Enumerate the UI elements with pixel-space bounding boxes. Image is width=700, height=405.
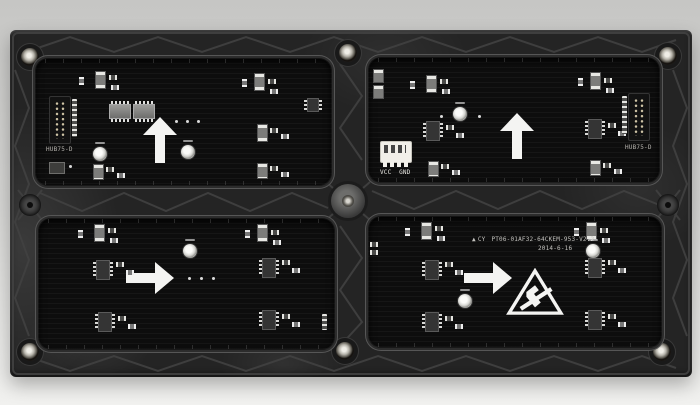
- via-dot: [69, 165, 72, 168]
- smd-capacitor: [93, 147, 107, 161]
- smd-ic: [425, 312, 439, 332]
- side-boss-left: [19, 194, 41, 216]
- component-cluster: [426, 121, 472, 143]
- component-cluster: [98, 312, 144, 334]
- component-cluster: [428, 161, 474, 181]
- smd-ic: [588, 119, 602, 139]
- smd-resistor: [292, 322, 300, 327]
- smd-resistor: [410, 81, 415, 89]
- smd-capacitor: [453, 107, 467, 121]
- smd-capacitor: [181, 145, 195, 159]
- smd-resistor: [281, 172, 289, 177]
- via-dot: [440, 115, 443, 118]
- smd-resistor: [117, 173, 125, 178]
- hub75-connector: [49, 96, 71, 144]
- solder-pads: [106, 167, 114, 172]
- solder-pads: [440, 79, 448, 84]
- triangle-logo-icon: ▲: [472, 237, 476, 243]
- smd-resistor: [602, 238, 610, 243]
- silkscreen-mark: [455, 102, 465, 104]
- smd-ic: [307, 98, 319, 112]
- component-cluster: [78, 224, 130, 250]
- solder-pads: [435, 226, 443, 231]
- solder-pads: [116, 262, 124, 267]
- esd-warning-icon: [506, 268, 564, 316]
- component-cluster: [257, 163, 303, 183]
- smd-resistor: [273, 240, 281, 245]
- smd-resistor: [245, 230, 250, 238]
- solder-pads: [268, 79, 276, 84]
- smd-ic: [96, 260, 110, 280]
- smd-resistor: [455, 324, 463, 329]
- smd-resistor: [79, 77, 84, 85]
- solder-pads: [600, 228, 608, 233]
- smd-capacitor: [586, 244, 600, 258]
- pcb-bay-bottom-left: [38, 218, 335, 350]
- smd-ic: [590, 72, 601, 90]
- solder-pads: [282, 260, 290, 265]
- smd-resistor: [242, 79, 247, 87]
- smd-resistor: [578, 78, 583, 86]
- arrow-up-icon: [500, 113, 534, 159]
- model-number: PT06-01AF32-64CKEM-953-V2.2: [491, 237, 594, 243]
- solder-pads: [604, 78, 612, 83]
- smd-ic: [588, 310, 602, 330]
- smd-ic: [590, 160, 601, 176]
- mounting-screw-top-center: [339, 44, 357, 62]
- side-boss-right: [657, 194, 679, 216]
- silkscreen-mark: [185, 239, 195, 241]
- smd-ic: [425, 260, 439, 280]
- silkscreen-mark: [95, 142, 105, 144]
- smd-ic: [588, 258, 602, 278]
- via-dot: [188, 277, 191, 280]
- solder-pads: [445, 316, 453, 321]
- arrow-right-icon: [464, 262, 512, 294]
- smd-ic: [426, 75, 437, 93]
- mounting-screw-bottom-left: [21, 343, 39, 361]
- vcc-label: VCC: [380, 169, 391, 176]
- component-cluster: [243, 224, 295, 250]
- smd-resistor: [128, 324, 136, 329]
- solder-pads: [270, 166, 278, 171]
- power-connector: [380, 141, 412, 163]
- smd-capacitor: [458, 294, 472, 308]
- center-mount-boss: [331, 184, 365, 218]
- smd-ic: [421, 222, 432, 240]
- smd-resistor: [442, 89, 450, 94]
- via-dot: [197, 120, 200, 123]
- solder-pads: [118, 316, 126, 321]
- via-dot: [478, 115, 481, 118]
- smd-ic: [49, 162, 65, 174]
- component-cluster: [590, 160, 636, 180]
- component-cluster: [588, 310, 634, 332]
- smd-ic: [373, 69, 384, 83]
- component-cluster: [370, 242, 386, 256]
- brand-label: CY: [478, 237, 486, 243]
- component-cluster: [572, 222, 624, 248]
- solder-pads: [108, 228, 116, 233]
- smd-resistor: [437, 236, 445, 241]
- smd-resistor: [110, 238, 118, 243]
- component-cluster: [262, 258, 308, 280]
- brand-mark: ▲ CY: [472, 237, 485, 243]
- solder-pads: [282, 314, 290, 319]
- silkscreen-mark: [588, 239, 598, 241]
- solder-pads: [445, 262, 453, 267]
- component-cluster: [96, 260, 142, 282]
- smd-resistor: [618, 322, 626, 327]
- smd-resistor: [281, 134, 289, 139]
- smd-resistor: [78, 230, 83, 238]
- smd-ic: [262, 258, 276, 278]
- smd-resistor: [270, 89, 278, 94]
- driver-ic: [109, 104, 131, 119]
- component-cluster: [410, 75, 462, 101]
- led-module-rear-frame: HUB75-D: [10, 30, 692, 377]
- solder-pads: [608, 260, 616, 265]
- smd-resistor: [292, 268, 300, 273]
- hub75-label: HUB75-D: [625, 145, 652, 151]
- smd-ic: [373, 85, 384, 99]
- smd-resistor: [618, 268, 626, 273]
- hub75-connector: [628, 93, 650, 141]
- smd-ic: [428, 161, 439, 177]
- via-dot: [175, 120, 178, 123]
- smd-resistor: [126, 270, 134, 275]
- silkscreen-text-row: ▲ CY PT06-01AF32-64CKEM-953-V2.2: [472, 237, 594, 243]
- component-cluster: [257, 124, 303, 146]
- smd-ic: [257, 224, 268, 242]
- smd-resistor: [614, 169, 622, 174]
- solder-pads: [370, 242, 378, 247]
- smd-ic: [257, 124, 268, 142]
- pcb-bay-top-left: HUB75-D: [35, 58, 332, 186]
- solder-pads: [608, 314, 616, 319]
- connector-solder-pins: [72, 99, 77, 137]
- smd-resistor: [405, 228, 410, 236]
- smd-ic: [93, 164, 104, 180]
- smd-ic: [426, 121, 440, 141]
- smd-ic: [262, 310, 276, 330]
- hub75-label: HUB75-D: [46, 147, 73, 153]
- smd-resistor: [456, 133, 464, 138]
- smd-ic: [95, 71, 106, 89]
- solder-pads: [608, 123, 616, 128]
- connector-solder-pins: [622, 96, 627, 134]
- solder-pads: [441, 164, 449, 169]
- smd-resistor: [111, 85, 119, 90]
- smd-resistor: [574, 228, 579, 236]
- photo-background: HUB75-D: [0, 0, 700, 405]
- smd-ic: [254, 73, 265, 91]
- smd-ic: [94, 224, 105, 242]
- component-cluster: [576, 72, 628, 98]
- mounting-screw-top-right: [659, 47, 677, 65]
- via-dot: [200, 277, 203, 280]
- smd-resistor: [455, 270, 463, 275]
- silkscreen-mark: [183, 140, 193, 142]
- smd-capacitor: [183, 244, 197, 258]
- gnd-label: GND: [399, 169, 410, 176]
- arrow-up-icon: [143, 117, 177, 163]
- component-cluster: [262, 310, 308, 332]
- date-code: 2014-6-16: [538, 246, 572, 252]
- smd-ic: [257, 163, 268, 179]
- via-dot: [186, 120, 189, 123]
- smd-resistor: [606, 88, 614, 93]
- power-labels: VCC GND: [380, 170, 411, 176]
- component-cluster: [588, 258, 634, 280]
- solder-pads: [370, 250, 378, 255]
- component-cluster: [405, 222, 457, 248]
- pcb-bay-top-right: VCC GND HUB75-D: [368, 57, 660, 183]
- smd-resistor: [452, 170, 460, 175]
- solder-pads: [270, 128, 278, 133]
- solder-pads: [603, 163, 611, 168]
- mounting-screw-bottom-center: [336, 342, 354, 360]
- component-cluster: [425, 312, 471, 334]
- component-cluster: [79, 71, 131, 97]
- connector-solder-pins: [322, 314, 327, 330]
- component-cluster: [93, 164, 139, 184]
- component-cluster: [240, 73, 292, 99]
- via-dot: [212, 277, 215, 280]
- pcb-bay-bottom-right: ▲ CY PT06-01AF32-64CKEM-953-V2.2 2014-6-…: [368, 216, 662, 348]
- solder-pads: [271, 230, 279, 235]
- smd-ic: [98, 312, 112, 332]
- solder-pads: [446, 125, 454, 130]
- solder-pads: [109, 75, 117, 80]
